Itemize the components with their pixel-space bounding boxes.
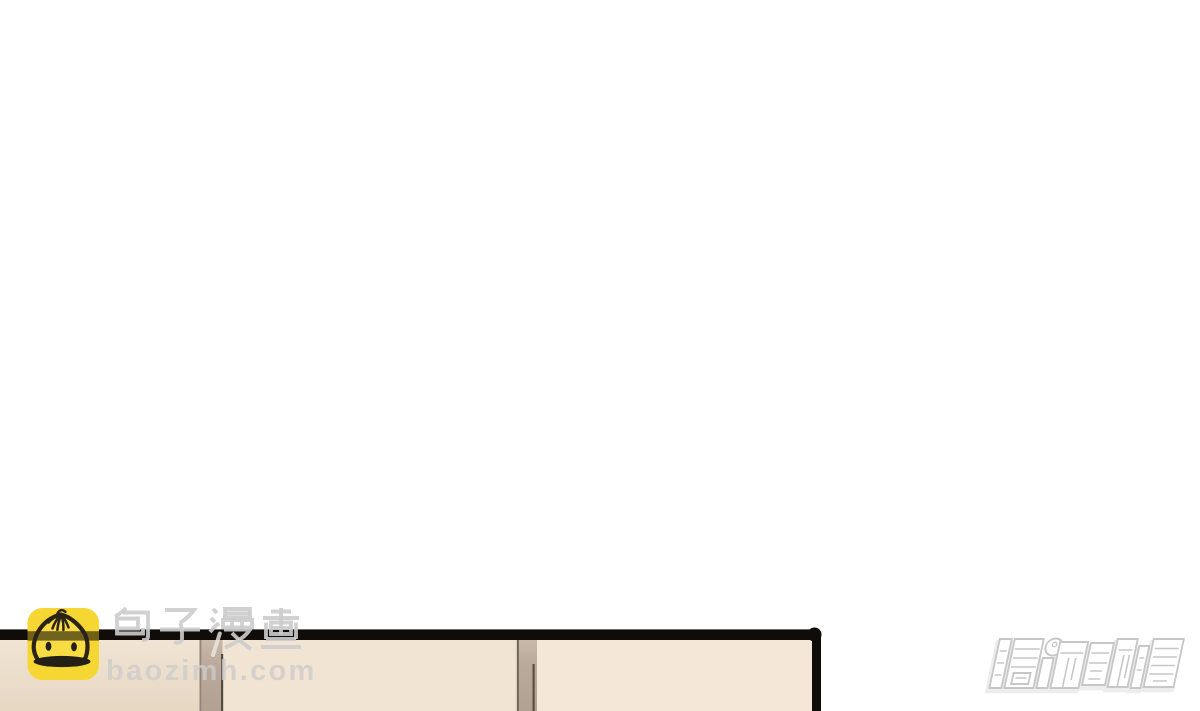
svg-text:baozimh.com: baozimh.com	[106, 655, 317, 687]
